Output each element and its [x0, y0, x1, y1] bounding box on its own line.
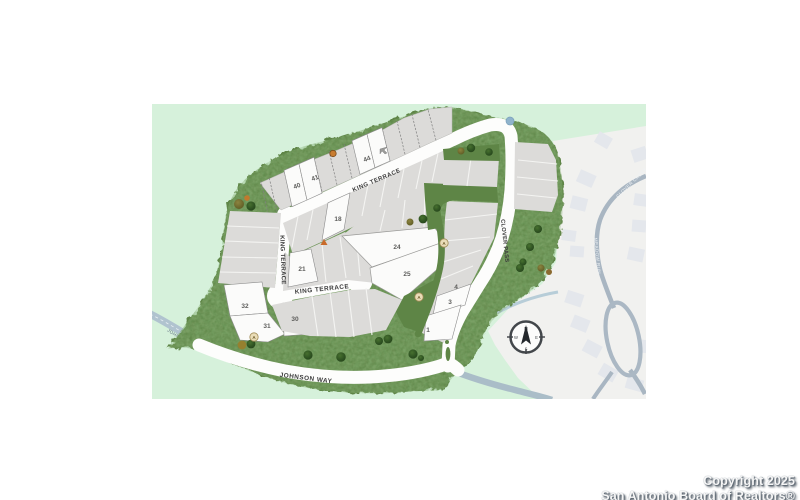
svg-text:W: W	[514, 335, 518, 340]
svg-text:S: S	[525, 347, 528, 352]
svg-text:1: 1	[426, 327, 430, 334]
svg-text:24: 24	[393, 244, 401, 251]
svg-text:30: 30	[291, 316, 299, 323]
svg-text:18: 18	[334, 216, 342, 223]
svg-text:3: 3	[448, 299, 452, 306]
svg-text:4: 4	[454, 284, 458, 291]
svg-text:31: 31	[263, 323, 271, 330]
svg-text:25: 25	[403, 271, 411, 278]
svg-text:32: 32	[241, 303, 249, 310]
svg-text:N: N	[524, 326, 527, 331]
svg-text:E: E	[535, 335, 538, 340]
svg-text:21: 21	[298, 266, 306, 273]
